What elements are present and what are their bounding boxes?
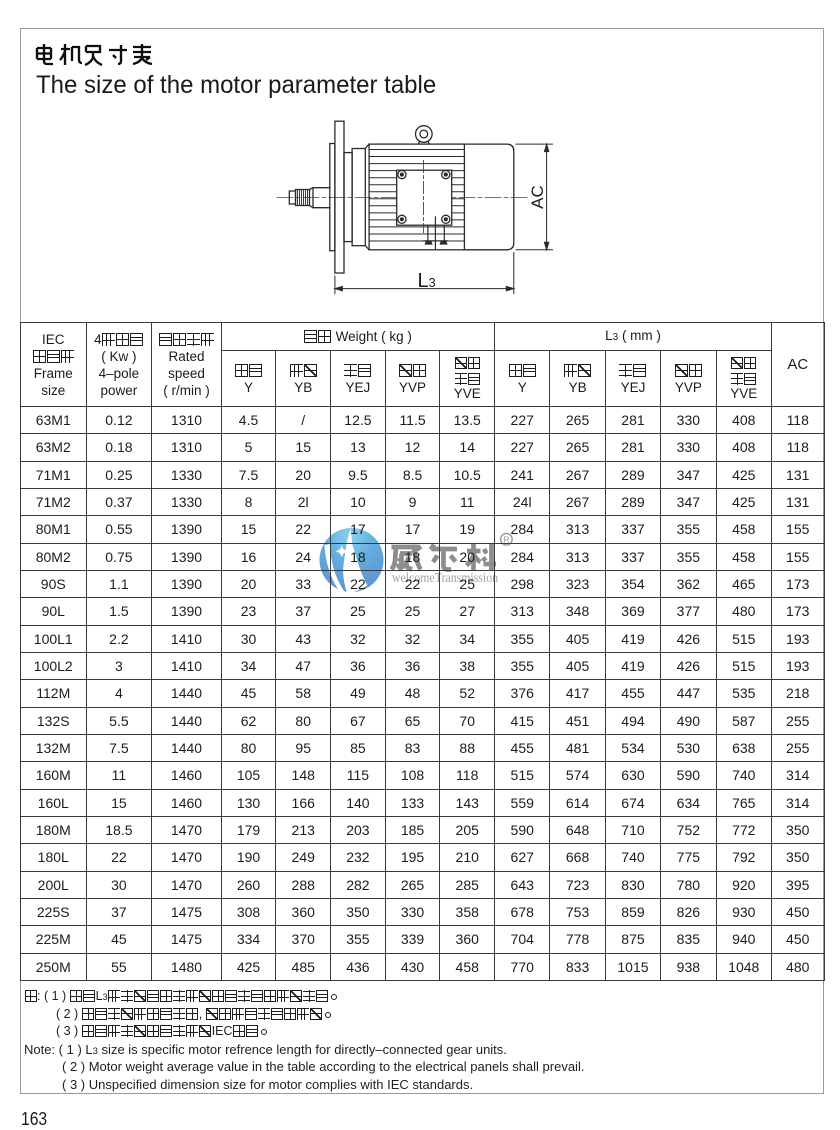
svg-text:AC: AC — [528, 185, 547, 209]
svg-text:L3: L3 — [418, 270, 436, 292]
